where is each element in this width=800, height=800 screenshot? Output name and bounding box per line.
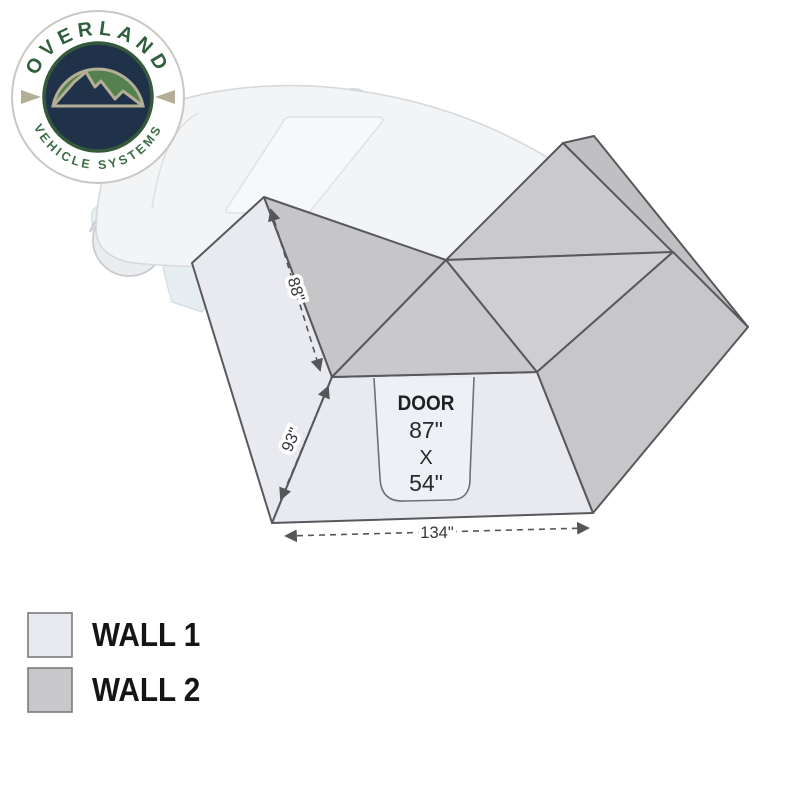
legend: WALL 1 WALL 2 xyxy=(28,613,200,712)
door-height-value: 87" xyxy=(409,417,443,443)
door-label: DOOR xyxy=(398,392,455,415)
legend-swatch-wall1 xyxy=(28,613,72,657)
dimension-label-134: 134" xyxy=(420,524,454,542)
door-width-value: 54" xyxy=(409,470,443,496)
door-separator: X xyxy=(419,447,432,469)
legend-swatch-wall2 xyxy=(28,668,72,712)
legend-label-wall1: WALL 1 xyxy=(92,617,200,654)
awning-diagram-page: DOOR 87" X 54" 88" 93" 134" OVERLAND VEH… xyxy=(0,0,800,800)
diagram-canvas: DOOR 87" X 54" 88" 93" 134" OVERLAND VEH… xyxy=(0,0,800,800)
legend-label-wall2: WALL 2 xyxy=(92,672,200,709)
brand-logo: OVERLAND VEHICLE SYSTEMS xyxy=(12,11,184,183)
